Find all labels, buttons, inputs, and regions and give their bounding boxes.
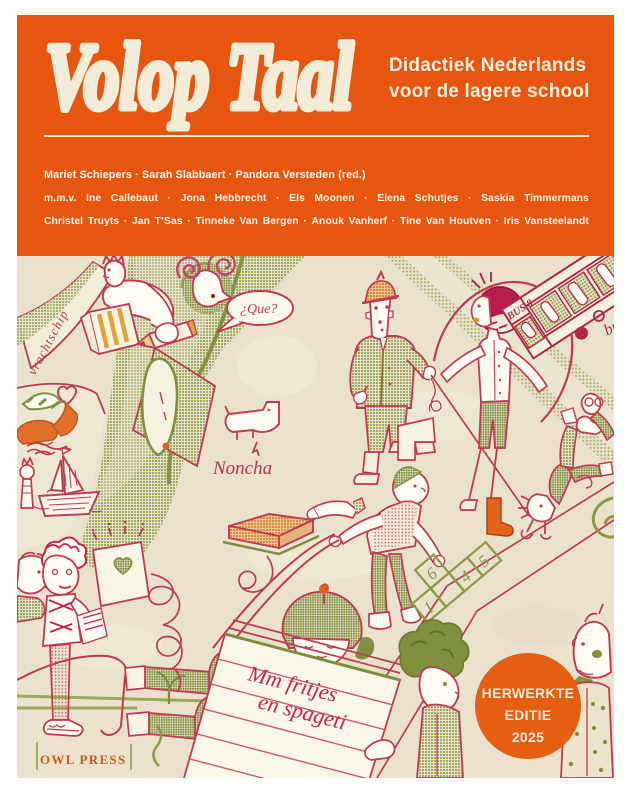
svg-text:Volop Taal: Volop Taal <box>45 25 353 129</box>
svg-text:EDITIE: EDITIE <box>505 707 552 723</box>
svg-text:¿Que?: ¿Que? <box>240 302 277 317</box>
svg-text:OWL PRESS: OWL PRESS <box>40 752 126 767</box>
svg-text:Noncha: Noncha <box>212 458 272 479</box>
svg-text:HERWERKTE: HERWERKTE <box>482 685 575 701</box>
svg-text:2025: 2025 <box>512 729 544 745</box>
